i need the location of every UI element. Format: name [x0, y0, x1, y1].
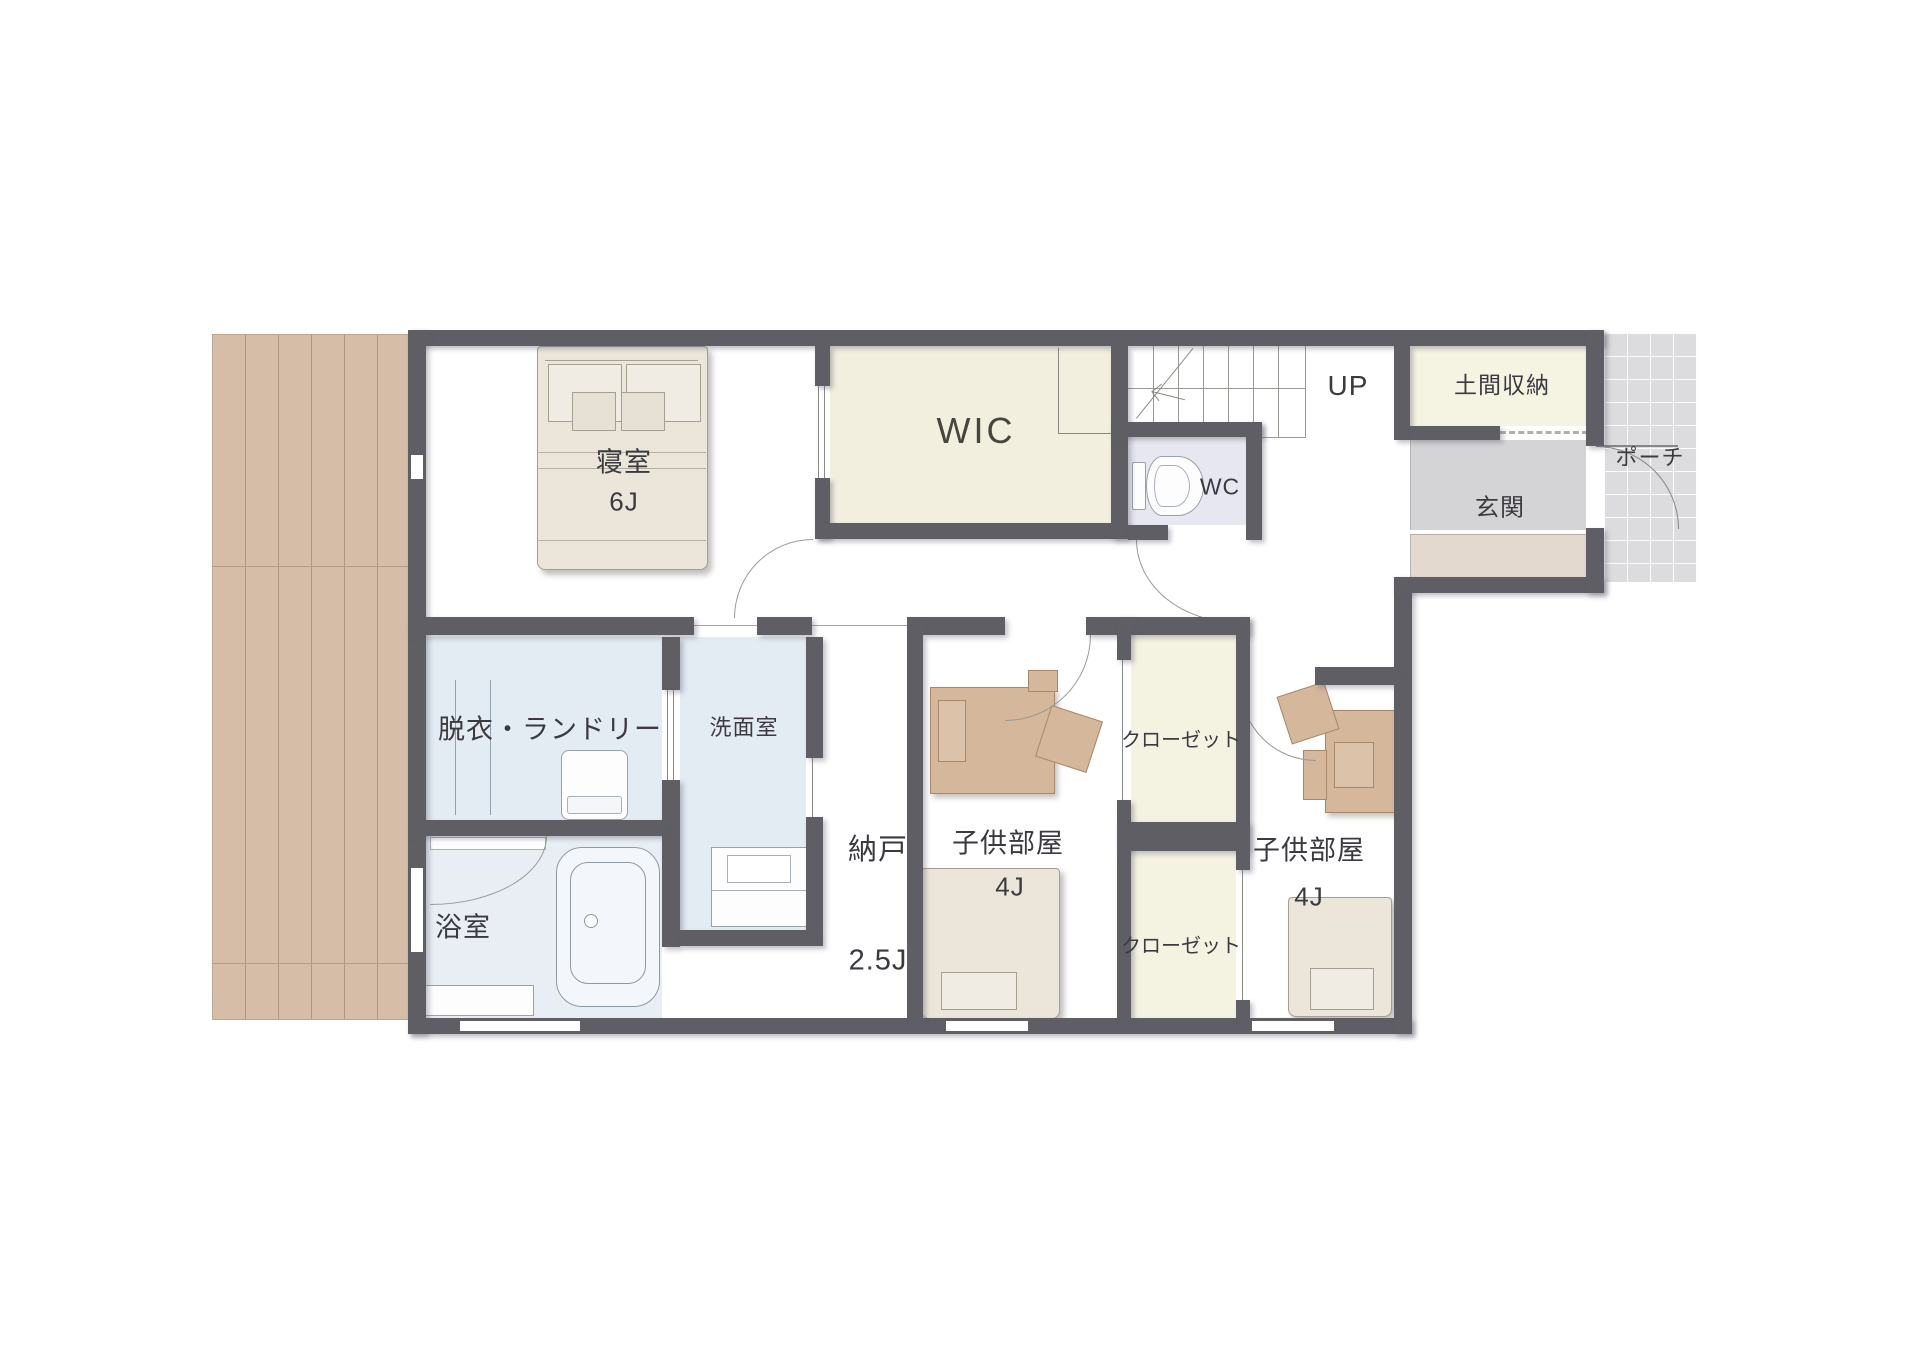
- window: [411, 455, 423, 479]
- label-doma-storage: 土間収納: [1454, 366, 1550, 400]
- laundry-sliding-door: [667, 690, 668, 780]
- stair-tread-line: [1178, 346, 1179, 422]
- hanger-rail: [1058, 433, 1111, 434]
- wall-closet-left-upper: [1117, 617, 1131, 660]
- label-porch: ポーチ: [1615, 440, 1684, 472]
- washroom-storage-opening: [812, 758, 813, 817]
- wall-wic-right: [1111, 346, 1128, 539]
- label-bedroom: 寝室: [596, 441, 652, 480]
- door-arc-bedroom: [734, 539, 813, 618]
- blanket-fold-line: [537, 540, 706, 541]
- hanger-rail: [1058, 348, 1059, 434]
- wall-wic-stub-top: [815, 346, 830, 386]
- label-entrance: 玄関: [1475, 488, 1525, 523]
- label-bathroom: 浴室: [435, 906, 491, 945]
- window: [1252, 1021, 1334, 1031]
- vanity-basin: [727, 855, 791, 883]
- wall-wc-top: [1111, 422, 1262, 437]
- stair-break-line: [1136, 348, 1193, 419]
- wood-deck: [212, 334, 410, 1020]
- bath-faucet: [584, 914, 598, 928]
- entrance-hall-step-line: [1410, 440, 1411, 577]
- label-wc: WC: [1200, 474, 1240, 501]
- entrance-step: [1410, 534, 1586, 578]
- laundry-sliding-door: [673, 690, 674, 780]
- wall-wc-bottom-stub: [1128, 525, 1168, 540]
- wall-bedroom-bottom: [408, 617, 694, 635]
- desk-line: [938, 700, 966, 762]
- washing-machine-panel: [567, 796, 622, 814]
- cushion: [572, 392, 616, 431]
- wall-entrance-right-lower: [1586, 528, 1604, 593]
- door-arc-wc: [1136, 540, 1237, 623]
- wall-exterior-top: [408, 330, 1604, 346]
- wall-washroom-bottom: [680, 930, 823, 946]
- floorplan-canvas: 寝室 6J WIC UP 土間収納 ポーチ 玄関 WC 脱衣・ランドリー 洗面室…: [0, 0, 1920, 1358]
- window: [460, 1021, 580, 1031]
- wall-closet-right-lower: [1236, 1000, 1250, 1018]
- wall-bathroom-top: [408, 820, 662, 836]
- window: [946, 1021, 1028, 1031]
- wall-kids-room-right-top: [1315, 667, 1396, 685]
- label-laundry: 脱衣・ランドリー: [438, 708, 662, 747]
- deck-joint-line: [212, 566, 408, 567]
- vanity-line: [711, 890, 806, 891]
- wall-segment: [757, 617, 812, 635]
- wall-entrance-right-upper: [1586, 330, 1604, 446]
- pillow: [941, 972, 1017, 1010]
- wic-sliding-door: [818, 386, 819, 478]
- wall-corridor-bottom-b: [1086, 617, 1250, 635]
- label-kids-room-left-size: 4J: [995, 872, 1024, 903]
- label-kids-room-right-size: 4J: [1294, 882, 1323, 913]
- window: [411, 868, 423, 952]
- wall-washroom-right-lower: [806, 817, 823, 930]
- wall-corridor-bottom-a: [923, 617, 1005, 635]
- wall-laundry-washroom-lower: [662, 780, 680, 947]
- wall-doma-bottom: [1410, 426, 1500, 440]
- washroom-door: [694, 625, 757, 626]
- pillow: [1310, 968, 1374, 1010]
- wic-sliding-door: [824, 386, 825, 478]
- door-arc-kids-room-right: [1240, 685, 1316, 761]
- drying-pole: [490, 680, 491, 815]
- doma-dashed-opening: [1500, 431, 1588, 434]
- label-bedroom-size: 6J: [609, 487, 638, 518]
- wall-laundry-washroom-upper: [662, 637, 680, 690]
- label-washroom: 洗面室: [709, 710, 778, 742]
- toilet-seat-line: [1154, 465, 1190, 507]
- storage-room-door: [812, 625, 907, 626]
- toilet-tank: [1132, 462, 1146, 510]
- label-stairs-up: UP: [1328, 370, 1369, 402]
- wall-washroom-right-upper: [806, 637, 823, 758]
- wall-storage-kids-divider: [907, 617, 923, 1018]
- wall-entrance-bottom: [1394, 577, 1604, 593]
- bed-headboard-line: [545, 360, 698, 361]
- door-arc-kids-room-left: [1005, 635, 1091, 721]
- wall-wic-bottom: [815, 523, 1128, 539]
- stair-tread-line: [1203, 346, 1204, 422]
- label-closet-upper: クローゼット: [1121, 724, 1241, 753]
- closet-lower-opening: [1242, 870, 1243, 1000]
- bathtub-inner: [570, 862, 646, 984]
- wall-wc-right: [1246, 422, 1262, 540]
- desk-line: [1334, 742, 1374, 788]
- cushion: [621, 392, 665, 431]
- bath-counter: [420, 985, 534, 1016]
- entrance-step-edge: [1410, 530, 1586, 534]
- wall-closet-middle: [1117, 822, 1250, 851]
- label-storage-room: 納戸: [848, 826, 908, 868]
- stair-landing-line: [1262, 437, 1306, 438]
- label-wic: WIC: [937, 410, 1016, 452]
- label-closet-lower: クローゼット: [1121, 930, 1241, 959]
- stair-tread-line: [1278, 346, 1279, 437]
- drying-pole: [455, 680, 456, 815]
- stair-tread-line: [1305, 346, 1306, 437]
- label-kids-room-right: 子供部屋: [1253, 829, 1365, 868]
- wall-doma-left-stub: [1394, 346, 1410, 440]
- stair-tread-line: [1153, 346, 1154, 422]
- label-kids-room-left: 子供部屋: [952, 822, 1064, 861]
- wall-exterior-right-lower: [1394, 577, 1412, 1034]
- label-storage-room-size: 2.5J: [849, 945, 908, 978]
- deck-joint-line: [212, 963, 408, 964]
